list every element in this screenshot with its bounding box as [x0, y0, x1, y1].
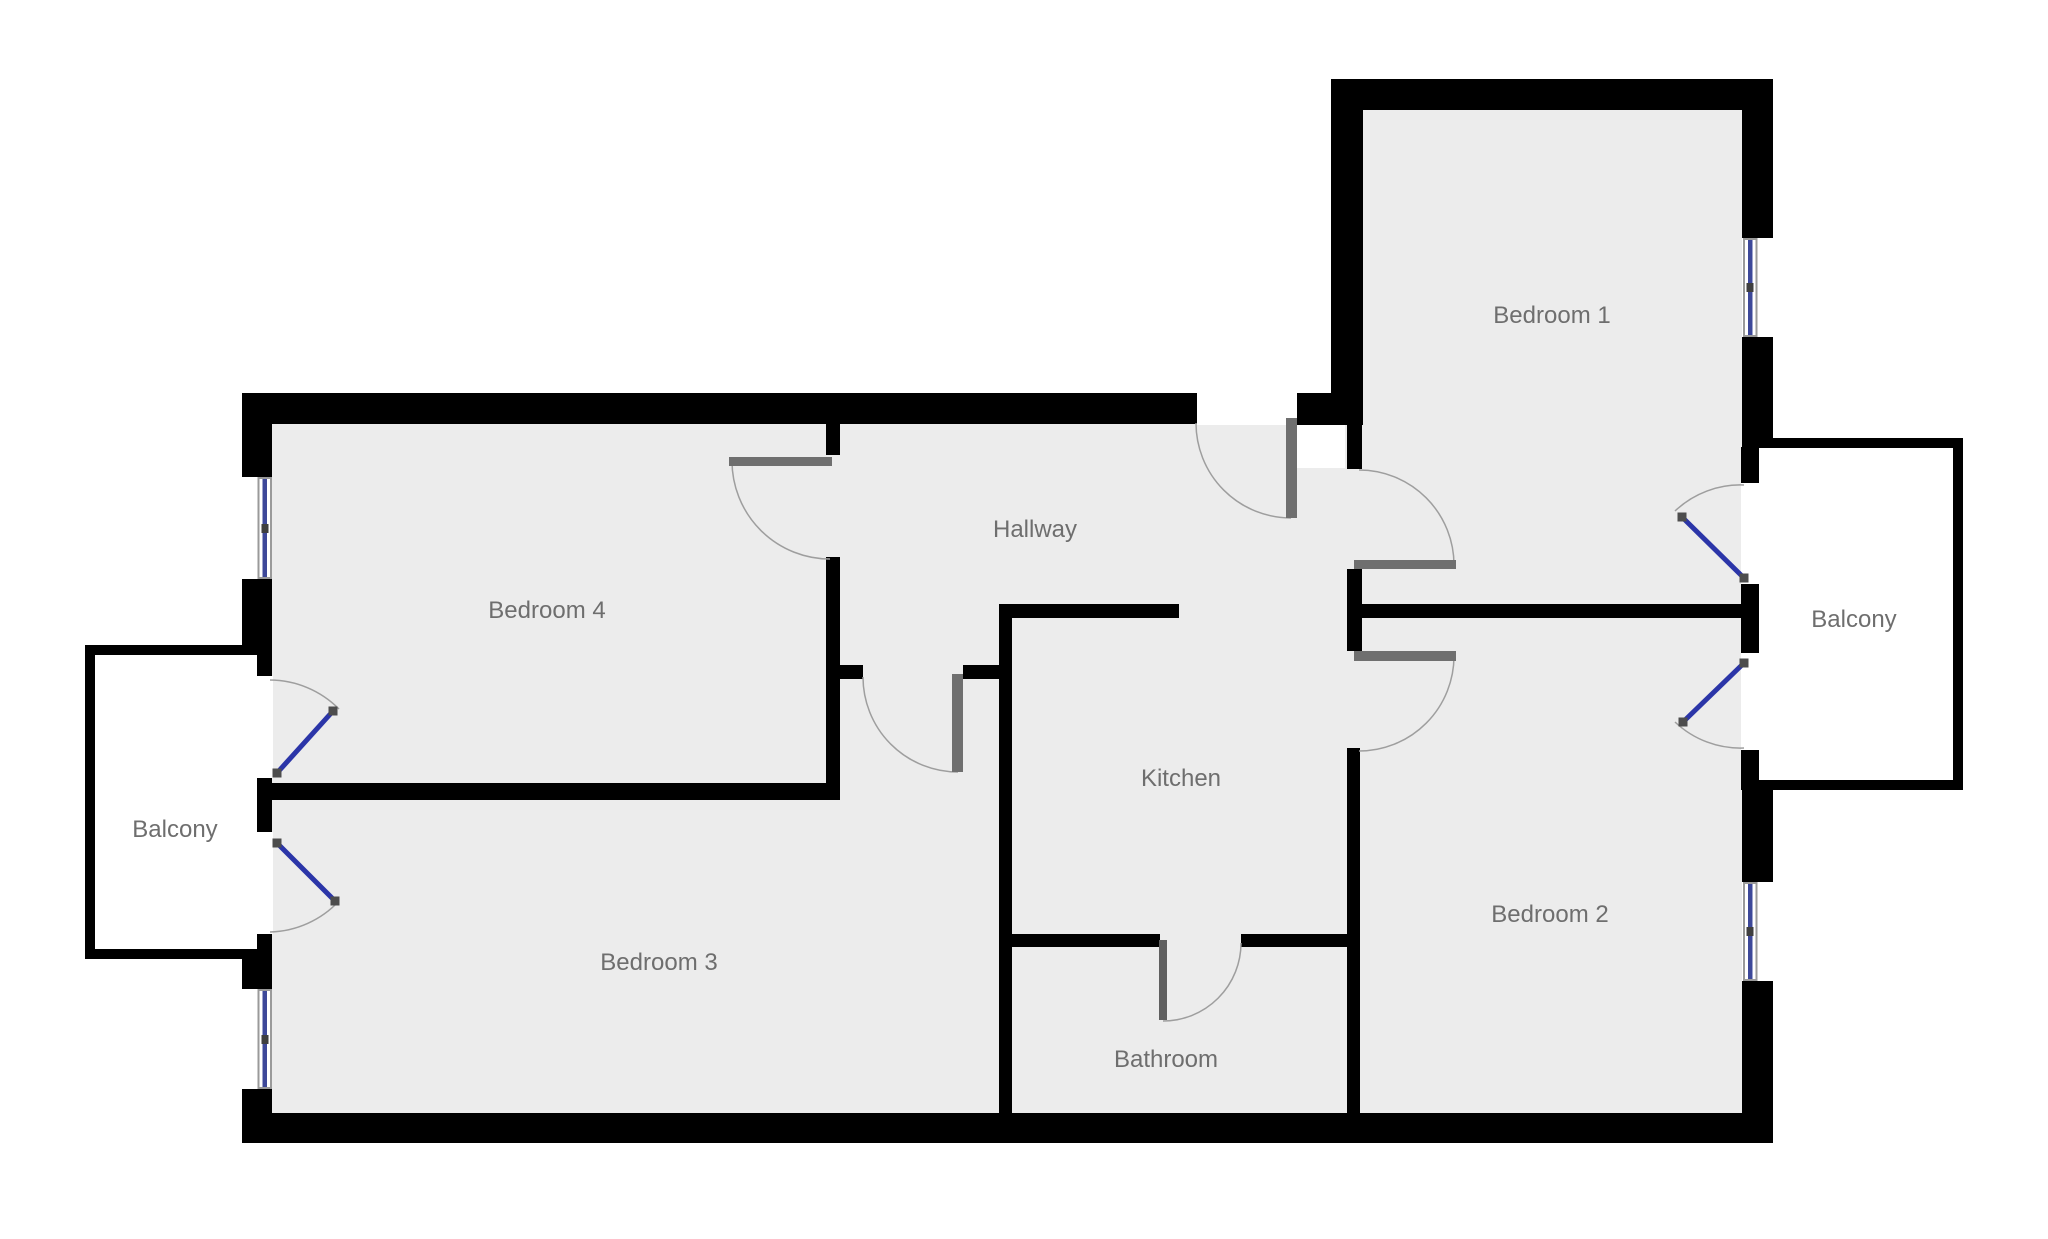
svg-text:Bathroom: Bathroom — [1114, 1046, 1218, 1073]
svg-text:Balcony: Balcony — [132, 816, 217, 843]
svg-text:Bedroom 2: Bedroom 2 — [1491, 901, 1608, 928]
svg-text:Bedroom 3: Bedroom 3 — [600, 949, 717, 976]
svg-text:Hallway: Hallway — [993, 516, 1077, 543]
svg-text:Kitchen: Kitchen — [1141, 765, 1221, 792]
svg-text:Bedroom 4: Bedroom 4 — [488, 597, 605, 624]
svg-text:Balcony: Balcony — [1811, 606, 1896, 633]
svg-text:Bedroom 1: Bedroom 1 — [1493, 302, 1610, 329]
